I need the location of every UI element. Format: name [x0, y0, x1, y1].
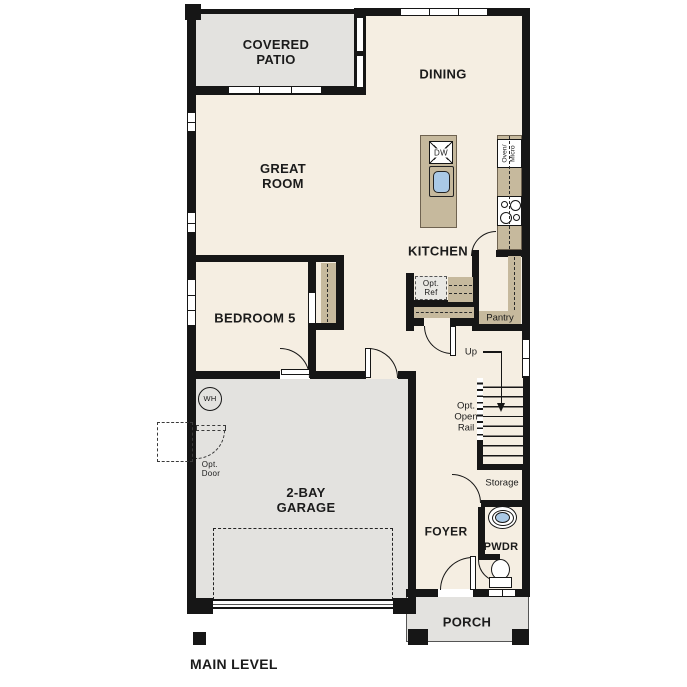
counter-dashline [416, 312, 472, 313]
window [187, 212, 196, 233]
plan-title: MAIN LEVEL [190, 657, 278, 672]
closet-rod-dashline [327, 264, 328, 322]
wall [308, 262, 316, 292]
wall [336, 255, 344, 330]
window-mullion [291, 87, 292, 93]
up-arrow-head [497, 403, 505, 412]
kitchen-door-leaf [450, 326, 456, 356]
window-mullion [188, 122, 195, 123]
bedroom5-label: BEDROOM 5 [214, 311, 295, 326]
wall [472, 250, 479, 331]
porch-post [408, 629, 428, 645]
covered-patio-label: COVERED PATIO [243, 37, 309, 67]
porch-label: PORCH [443, 615, 491, 630]
title-marker [193, 632, 206, 645]
opt-ref-label: Opt. Ref [423, 279, 439, 297]
up-arrow-line [501, 351, 503, 404]
wall [187, 598, 213, 614]
bedroom5-door-leaf [281, 369, 310, 375]
water-heater-label: WH [203, 395, 216, 403]
window [187, 112, 196, 132]
cabinet-dashline [449, 285, 472, 286]
dining-label: DINING [419, 67, 466, 82]
up-label: Up [465, 347, 477, 358]
garage-overhead-door [213, 599, 393, 609]
pantry-shelf-dashline [514, 257, 515, 310]
wall [308, 323, 344, 330]
garage-door-line [213, 604, 393, 605]
window [187, 279, 196, 326]
window-mullion [259, 87, 260, 93]
wall [477, 463, 523, 470]
burner [500, 212, 512, 224]
sliding-door [356, 17, 364, 52]
opt-open-rail-label: Opt. Open Rail [454, 401, 477, 434]
toilet-tank [489, 577, 512, 588]
wall [406, 589, 438, 597]
foyer-label: FOYER [425, 525, 468, 540]
up-arrow-line [483, 351, 502, 353]
cabinet [448, 277, 473, 302]
garage-bay-outline [213, 528, 393, 600]
burner [513, 214, 520, 221]
burner [501, 201, 508, 208]
window-mullion [502, 590, 503, 596]
window-mullion [188, 310, 195, 311]
wall [199, 9, 357, 14]
wall [450, 318, 474, 326]
window [488, 589, 516, 597]
porch-post [512, 629, 529, 645]
floor-plan: DW Oven/ Micro Opt. Ref Pantry [0, 0, 687, 687]
kitchen-label: KITCHEN [408, 244, 468, 259]
wall [472, 324, 530, 331]
wall [522, 8, 530, 597]
great-room-label: GREAT ROOM [260, 161, 306, 191]
stair-open-rail [477, 378, 483, 441]
wall [393, 598, 416, 614]
opt-door-label: Opt. Door [202, 460, 221, 478]
window [400, 8, 488, 16]
powder-label: PWDR [484, 541, 519, 553]
cabinet-dashline [449, 293, 472, 294]
wall [187, 371, 280, 379]
dishwasher-label: DW [433, 149, 449, 158]
wall [408, 378, 416, 608]
window-mullion [458, 9, 459, 15]
window-mullion [429, 9, 430, 15]
burner [510, 200, 521, 211]
counter-dashline [509, 136, 510, 249]
front-door-leaf [470, 556, 476, 590]
opt-door-outline [157, 422, 193, 462]
wall [190, 255, 344, 262]
wall [516, 589, 530, 597]
sliding-door [356, 55, 364, 88]
window [522, 339, 530, 377]
door-opening [438, 589, 473, 597]
window [228, 86, 322, 94]
window-mullion [523, 358, 529, 359]
garage-label: 2-BAY GARAGE [277, 485, 336, 515]
wall [310, 371, 368, 379]
window-mullion [188, 223, 195, 224]
closet-opening [308, 292, 316, 326]
stairs [483, 378, 523, 464]
pantry-label: Pantry [486, 313, 513, 324]
closet-shelf [321, 263, 336, 323]
wall [473, 589, 488, 597]
powder-sink-basin [495, 512, 510, 523]
wall [406, 318, 424, 326]
storage-label: Storage [485, 478, 518, 489]
wall [187, 378, 196, 614]
island-sink [433, 171, 450, 193]
window-mullion [188, 295, 195, 296]
garage-door-leaf [365, 348, 371, 378]
